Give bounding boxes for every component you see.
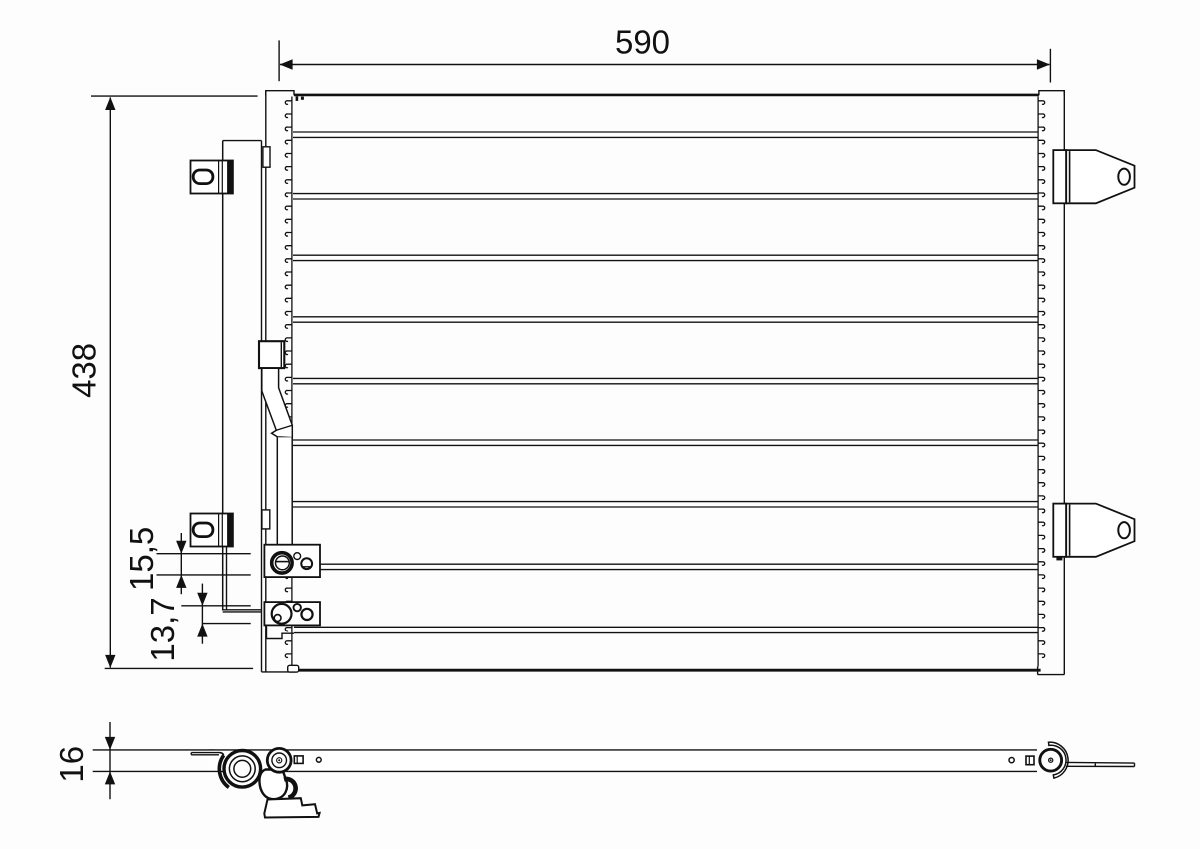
svg-text:15,5: 15,5 [123, 527, 160, 591]
svg-text:590: 590 [615, 23, 670, 60]
svg-text:13,7: 13,7 [144, 597, 181, 661]
svg-text:16: 16 [53, 746, 90, 783]
svg-text:438: 438 [66, 343, 103, 398]
